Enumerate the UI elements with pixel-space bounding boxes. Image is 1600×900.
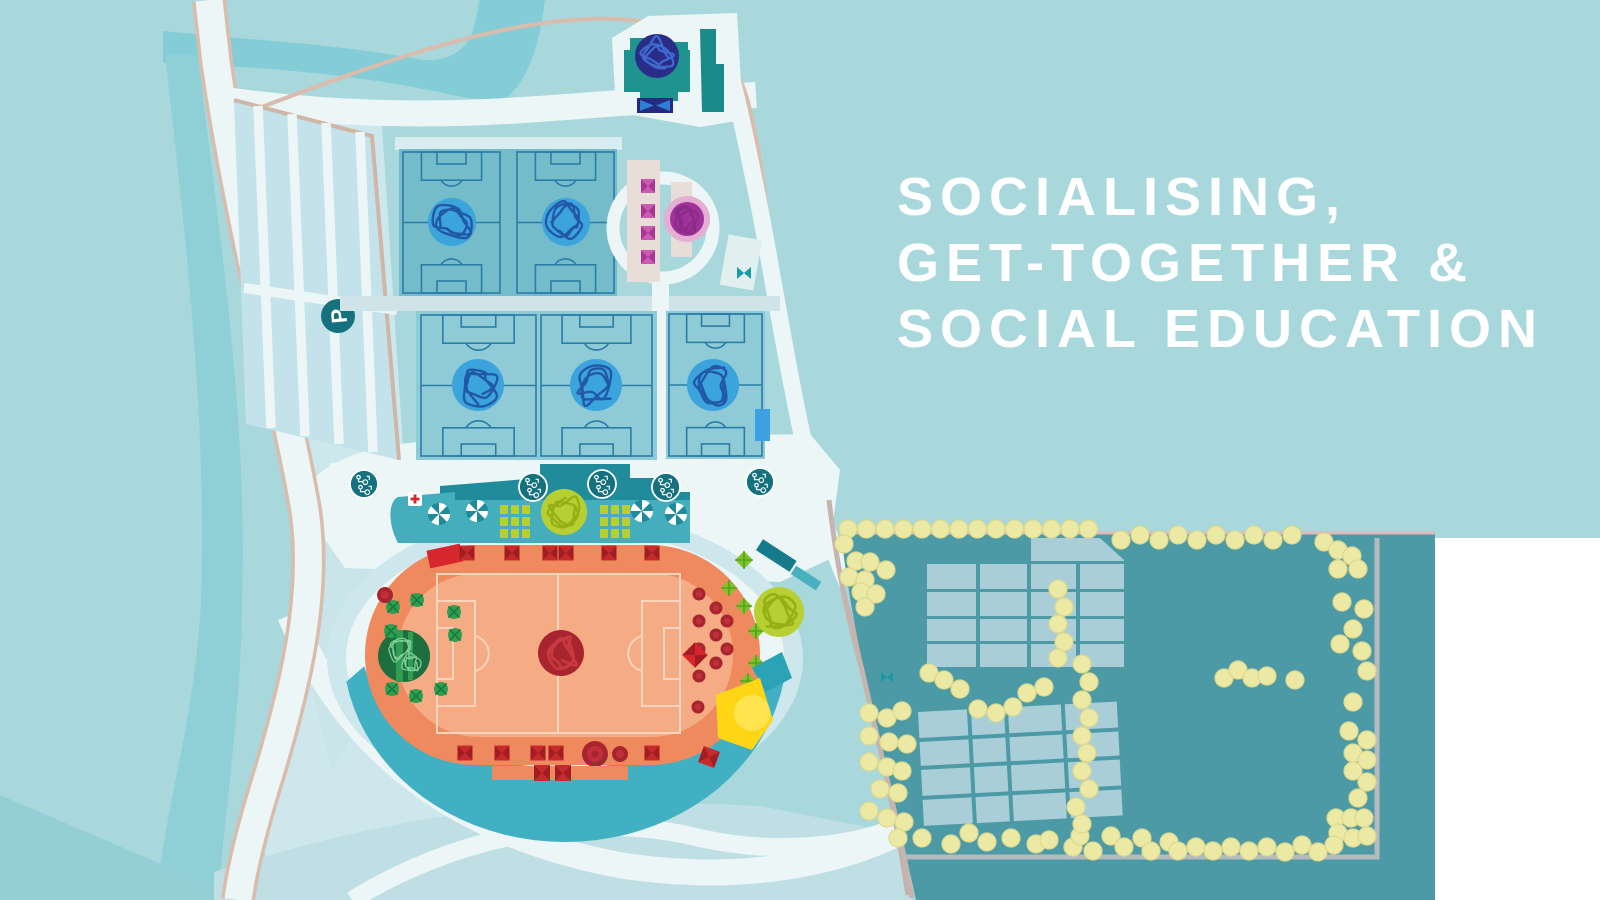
svg-text:SOCIAL EDUCATION: SOCIAL EDUCATION — [897, 299, 1544, 359]
svg-text:SOCIALISING,: SOCIALISING, — [897, 167, 1347, 227]
svg-text:GET-TOGETHER &: GET-TOGETHER & — [897, 233, 1474, 293]
